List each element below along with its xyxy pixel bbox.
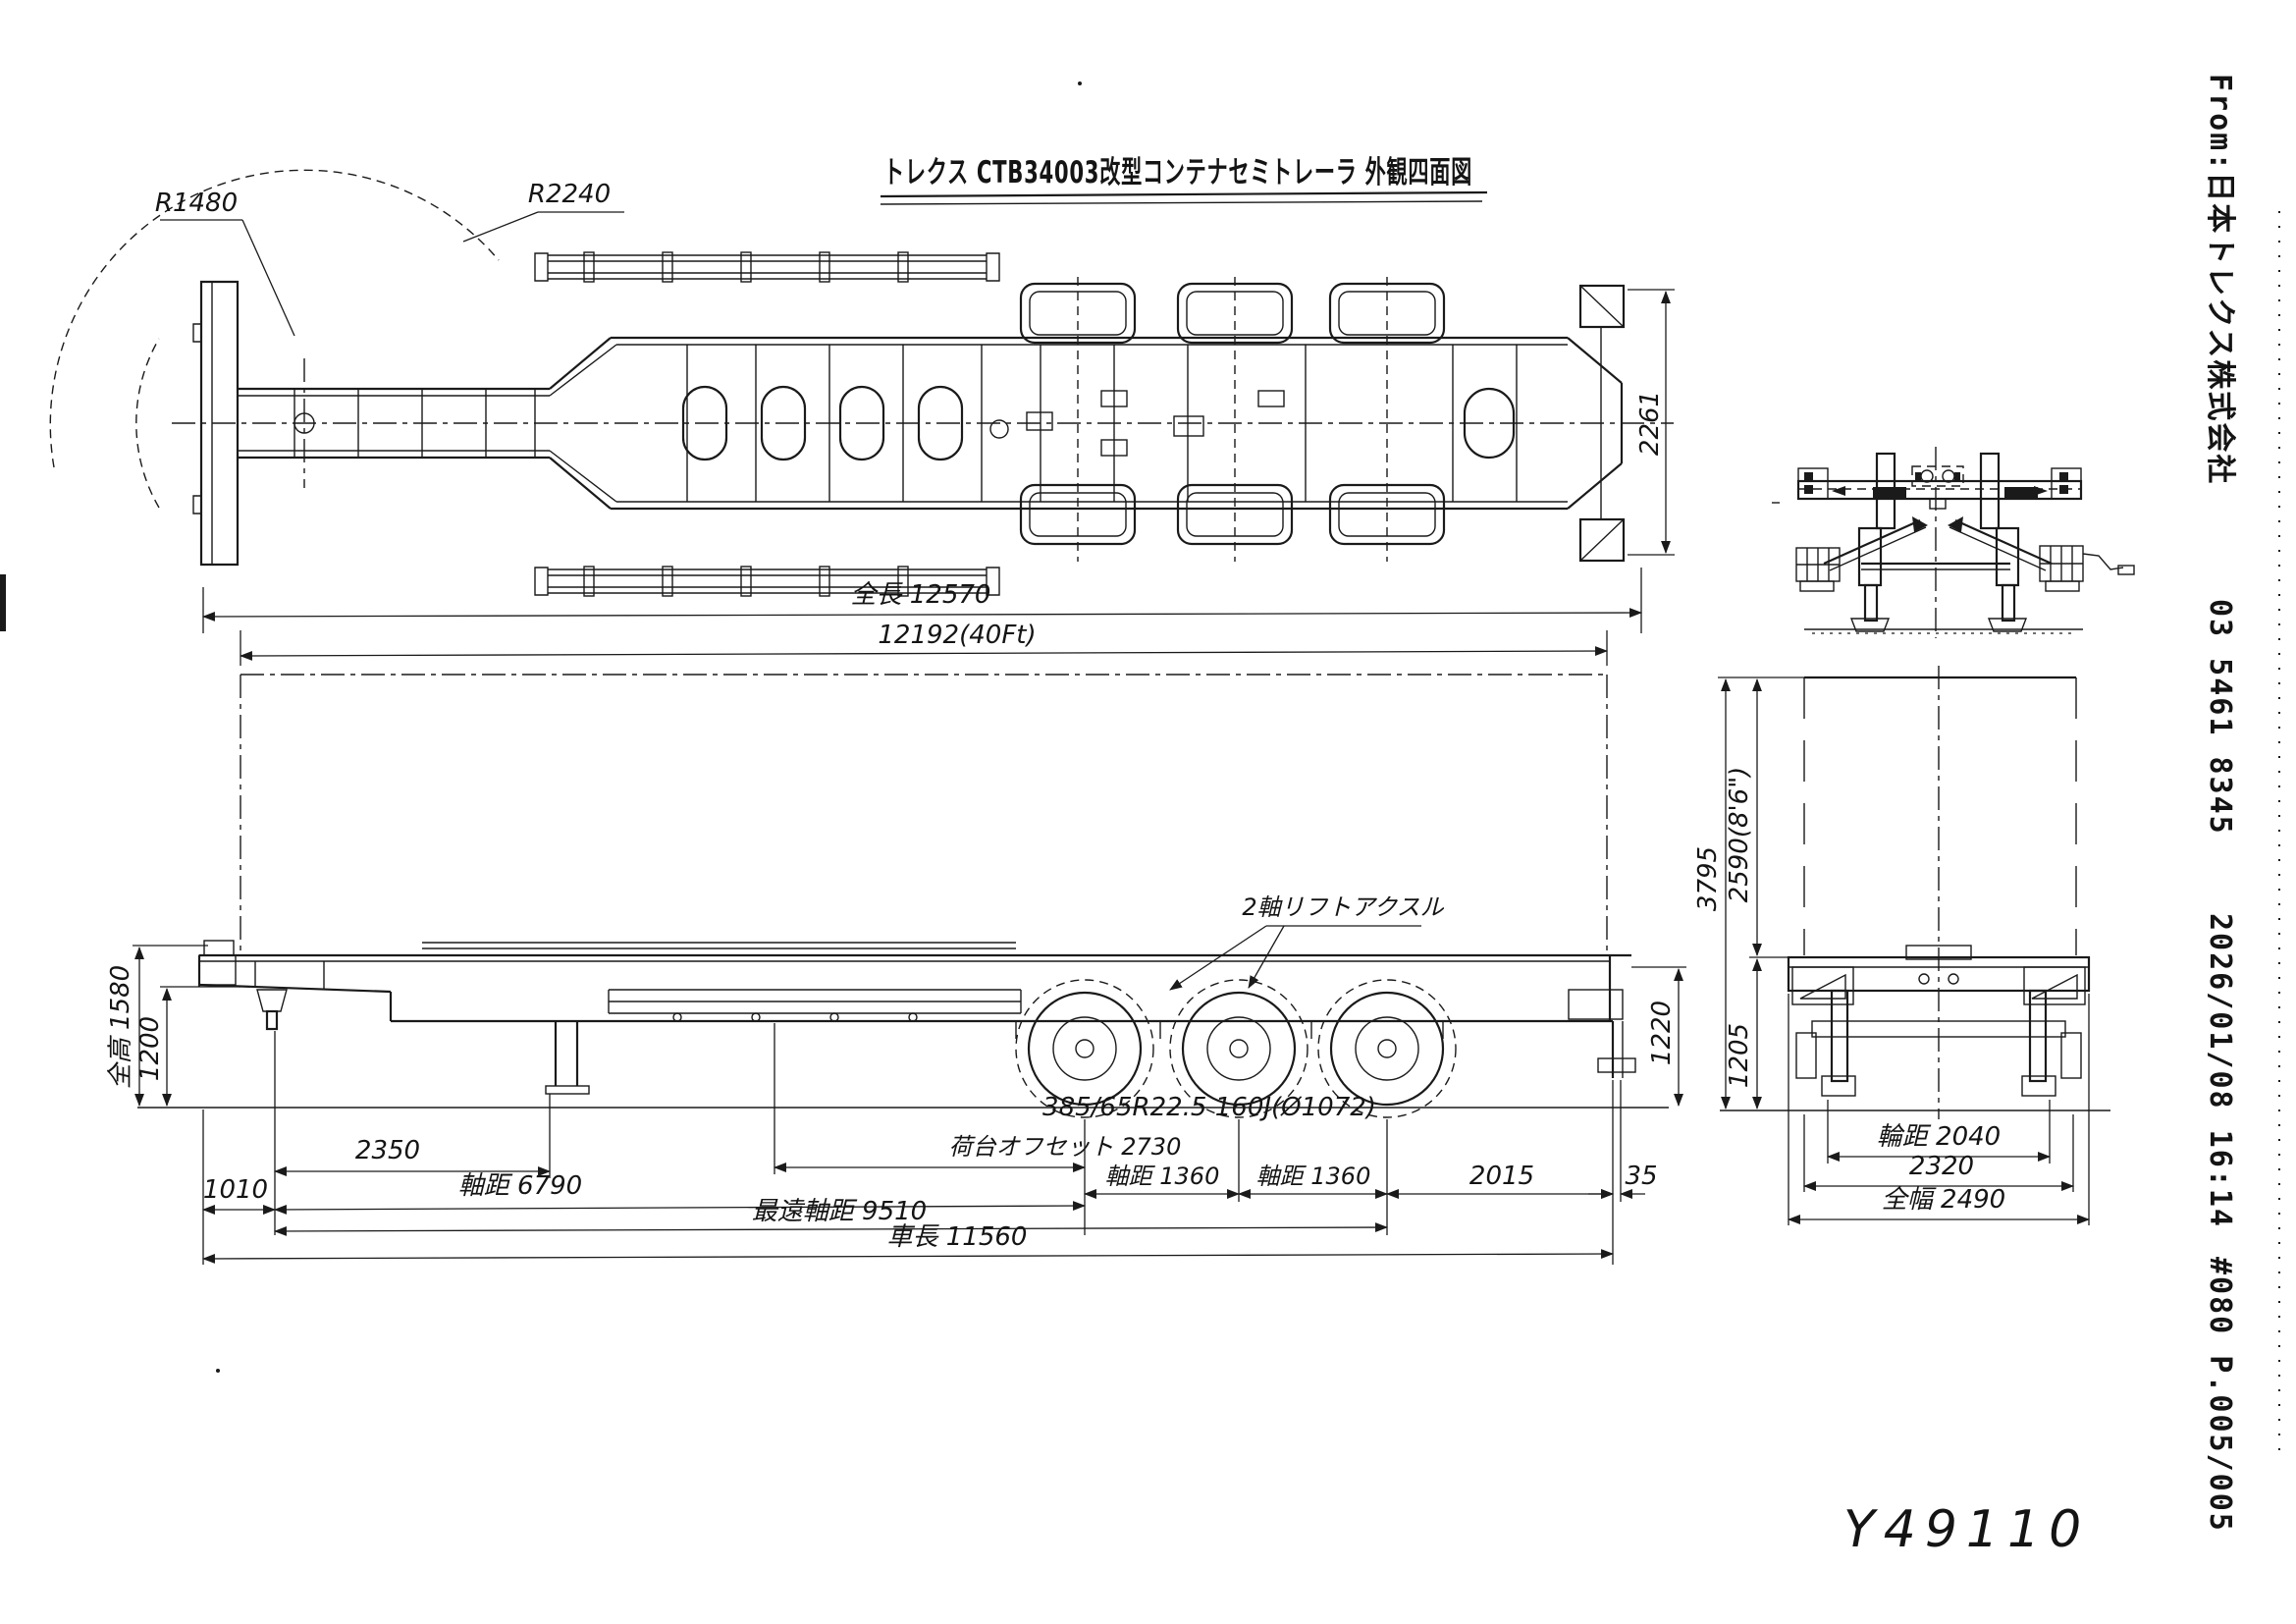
container-guide-rails (535, 252, 999, 596)
label-tire-size: 385/65R22.5 160J(Ø1072) (1042, 1093, 1376, 1122)
dim-radius-front: R1480 (155, 189, 238, 218)
top-view-wheels (1021, 284, 1444, 544)
fax-phone: 03 5461 8345 (2203, 599, 2237, 836)
dim-rear-frame-height: 1220 (1647, 1001, 1677, 1065)
dim-deck-offset: 荷台オフセット 2730 (949, 1133, 1182, 1161)
front-view (1772, 447, 2134, 638)
dim-rear-margin: 35 (1625, 1162, 1657, 1191)
fax-datetime: 2026/01/08 16:14 (2203, 913, 2237, 1228)
drawing-canvas: トレクス CTB34003改型コンテナセミトレーラ 外観四面図 From:日本ト… (0, 0, 2296, 1624)
dim-front-overhang: 1010 (203, 1175, 268, 1205)
dim-overall-length: 全長 12570 (851, 580, 991, 610)
dim-container-length: 12192(40Ft) (878, 621, 1036, 650)
dim-chassis-height: 1205 (1725, 1023, 1754, 1088)
bottom-dimensions: 2350 荷台オフセット 2730 軸距 1360 軸距 1360 2015 3… (203, 1023, 1658, 1265)
dim-front-deck-height: 1200 (135, 1016, 165, 1081)
side-view: 2軸リフトアクスル 385/65R22.5 160J(Ø1072) 全高 158… (106, 675, 1686, 1122)
dim-radius-rear: R2240 (528, 180, 611, 209)
page-title: トレクス CTB34003改型コンテナセミトレーラ 外観四面図 (883, 155, 1472, 190)
dim-axle-space-1: 軸距 1360 (1105, 1163, 1220, 1190)
dim-axle-space-2: 軸距 1360 (1256, 1163, 1371, 1190)
dim-rear-space: 2015 (1469, 1162, 1534, 1191)
dim-top-width: 2261 (1635, 391, 1665, 456)
drawing-title-block: トレクス CTB34003改型コンテナセミトレーラ 外観四面図 (881, 155, 1487, 204)
top-view: R1480 R2240 (50, 170, 1675, 596)
dim-wheelbase: 軸距 6790 (458, 1171, 582, 1201)
label-lift-axle: 2軸リフトアクスル (1242, 893, 1444, 921)
dim-vehicle-length: 車長 11560 (887, 1222, 1028, 1252)
dim-kingpin-offset: 2350 (355, 1136, 420, 1165)
dim-frame-width: 2320 (1909, 1152, 1974, 1181)
dim-overall-width: 全幅 2490 (1882, 1185, 2005, 1215)
dim-container-height: 2590(8'6") (1725, 767, 1754, 903)
fax-scan-page: トレクス CTB34003改型コンテナセミトレーラ 外観四面図 From:日本ト… (0, 0, 2296, 1624)
dim-track: 輪距 2040 (1877, 1122, 2001, 1152)
fax-header: From:日本トレクス株式会社 03 5461 8345 2026/01/08 … (2203, 74, 2237, 1533)
rear-view: 3795 2590(8'6") 1205 輪距 2040 2320 全幅 249… (1693, 666, 2110, 1225)
handwritten-note: Y49110 (1843, 1500, 2090, 1559)
dim-total-height: 3795 (1693, 846, 1723, 911)
dim-overall-height: 全高 1580 (106, 965, 135, 1089)
fax-from: From:日本トレクス株式会社 (2203, 74, 2237, 485)
length-dimensions: 全長 12570 12192(40Ft) (203, 568, 1641, 666)
fax-page-info: #080 P.005/005 (2203, 1257, 2237, 1533)
